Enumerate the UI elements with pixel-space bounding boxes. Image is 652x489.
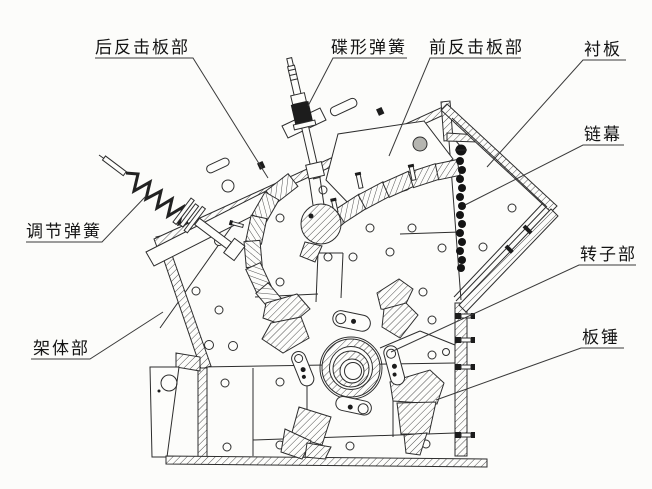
- label-blow-bar: 板锤: [582, 328, 620, 347]
- label-front-impact-plate-assembly: 前反击板部: [429, 38, 524, 57]
- rotor-drawing: [320, 337, 382, 399]
- wall-bolt: [455, 337, 475, 343]
- casing-base: [166, 456, 487, 467]
- label-frame-assembly: 架体部: [33, 339, 90, 358]
- crusher-cross-section-drawing: [0, 0, 652, 489]
- disc-spring-assembly: [278, 56, 327, 181]
- wall-bolt: [455, 364, 475, 370]
- crusher-structure-diagram: 后反击板部 碟形弹簧 前反击板部 衬板 链幕 调节弹簧 架体部 转子部 板锤: [0, 0, 652, 489]
- cover-handle: [205, 157, 230, 174]
- left-foot: [150, 367, 179, 457]
- label-adjusting-spring: 调节弹簧: [26, 222, 102, 241]
- label-chain-curtain: 链幕: [584, 125, 622, 144]
- label-liner-plate: 衬板: [584, 40, 622, 59]
- casing-right-wall: [455, 303, 475, 456]
- label-rotor-assembly: 转子部: [580, 245, 637, 264]
- wall-bolt: [455, 432, 475, 438]
- label-disc-spring: 碟形弹簧: [331, 38, 407, 57]
- label-rear-impact-plate-assembly: 后反击板部: [95, 38, 190, 57]
- chain-curtain-drawing: [455, 141, 467, 272]
- cover-handle: [329, 97, 358, 117]
- liner-plate-drawing: [454, 203, 558, 312]
